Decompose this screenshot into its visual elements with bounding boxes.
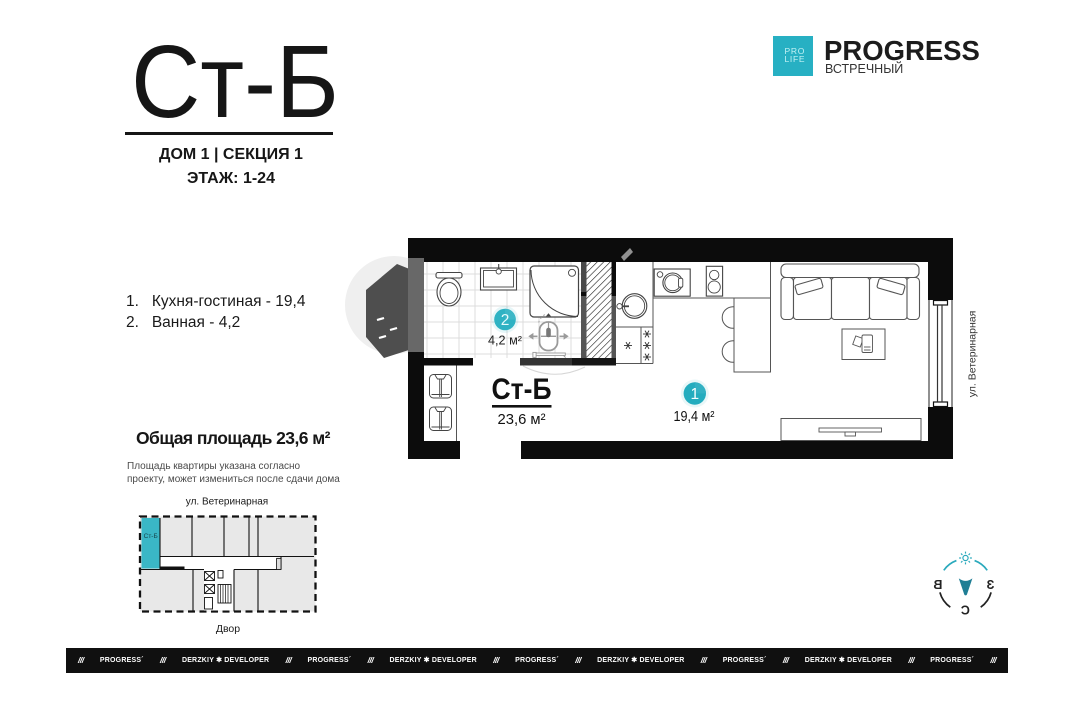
svg-text:Двор: Двор — [216, 623, 240, 635]
svg-text:Ст-Б: Ст-Б — [144, 533, 158, 540]
svg-text:С: С — [961, 603, 970, 617]
svg-text:23,6 м²: 23,6 м² — [498, 411, 546, 428]
svg-text:З: З — [986, 578, 994, 592]
svg-text:19,4 м²: 19,4 м² — [674, 409, 715, 425]
svg-text:Ст-Б: Ст-Б — [492, 373, 552, 406]
svg-text:В: В — [933, 578, 942, 592]
svg-text:2: 2 — [501, 312, 510, 329]
svg-text:ул. Ветеринарная: ул. Ветеринарная — [967, 311, 979, 398]
svg-text:4,2 м²: 4,2 м² — [488, 333, 523, 348]
svg-text:ул. Ветеринарная: ул. Ветеринарная — [186, 497, 268, 508]
svg-text:1: 1 — [690, 386, 699, 403]
